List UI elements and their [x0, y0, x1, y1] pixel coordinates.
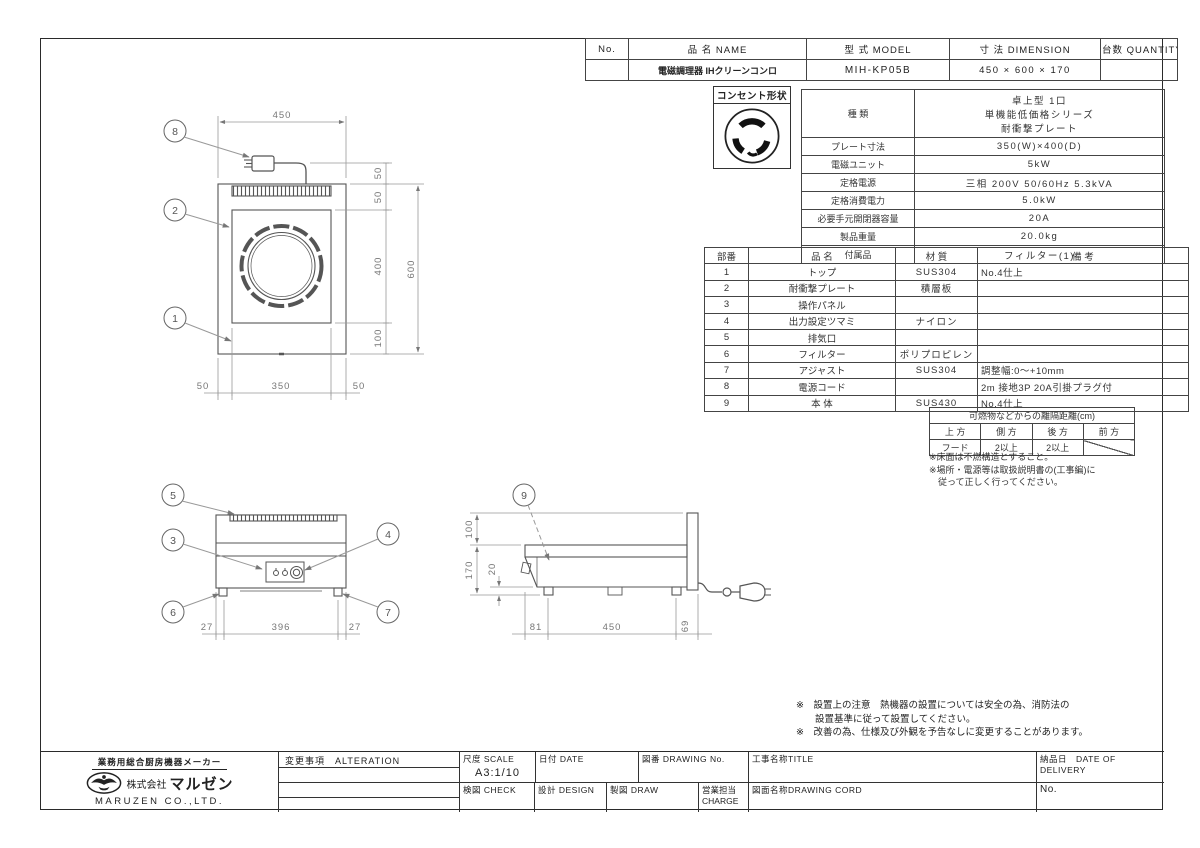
callout-4: 4 [385, 529, 391, 541]
dim-side-height-2: 20 [487, 563, 498, 576]
callout-3: 3 [170, 535, 176, 547]
dim-top-bottom-2: 50 [353, 381, 366, 392]
side-power-cord [698, 583, 771, 601]
power-cord [244, 156, 306, 184]
front-view-callouts [162, 484, 399, 623]
top-view: 8 2 1 450 50 350 50 50 50 400 100 600 [164, 110, 424, 400]
dim-top-right-0: 50 [373, 167, 384, 180]
dim-side-bottom-1: 450 [603, 622, 622, 633]
dim-top-bottom-1: 350 [272, 381, 291, 392]
control-panel [274, 567, 303, 579]
callout-6: 6 [170, 607, 176, 619]
dim-front-bottom-1: 396 [272, 622, 291, 633]
dim-front-bottom-2: 27 [349, 622, 362, 633]
callout-7: 7 [385, 607, 391, 619]
dim-top-right-3: 100 [373, 329, 384, 348]
dim-top-bottom-0: 50 [197, 381, 210, 392]
dim-top-depth: 600 [406, 260, 417, 279]
dim-front-bottom-0: 27 [201, 622, 214, 633]
front-view: 5 3 4 6 7 27 396 27 [162, 484, 399, 640]
dim-side-height-0: 100 [464, 520, 475, 539]
drawing-sheet-page: No. 品 名 NAME 型 式 MODEL 寸 法 DIMENSION 台数 … [0, 0, 1200, 848]
callout-9: 9 [521, 490, 527, 502]
dim-side-height-1: 170 [464, 561, 475, 580]
dim-top-right-2: 400 [373, 257, 384, 276]
dim-side-bottom-0: 81 [530, 622, 543, 633]
side-view-callouts [513, 484, 549, 560]
dim-top-right-1: 50 [373, 191, 384, 204]
dim-top-width: 450 [273, 110, 292, 121]
top-view-callouts [164, 120, 249, 341]
dim-side-bottom-2: 69 [680, 620, 691, 633]
callout-1: 1 [172, 313, 178, 325]
callout-5: 5 [170, 490, 176, 502]
drawing-views: 8 2 1 450 50 350 50 50 50 400 100 600 [0, 0, 1200, 848]
side-view: 9 100 170 20 81 450 69 [464, 484, 771, 640]
callout-2: 2 [172, 205, 178, 217]
side-view-dimension-lines [470, 513, 712, 640]
callout-8: 8 [172, 126, 178, 138]
